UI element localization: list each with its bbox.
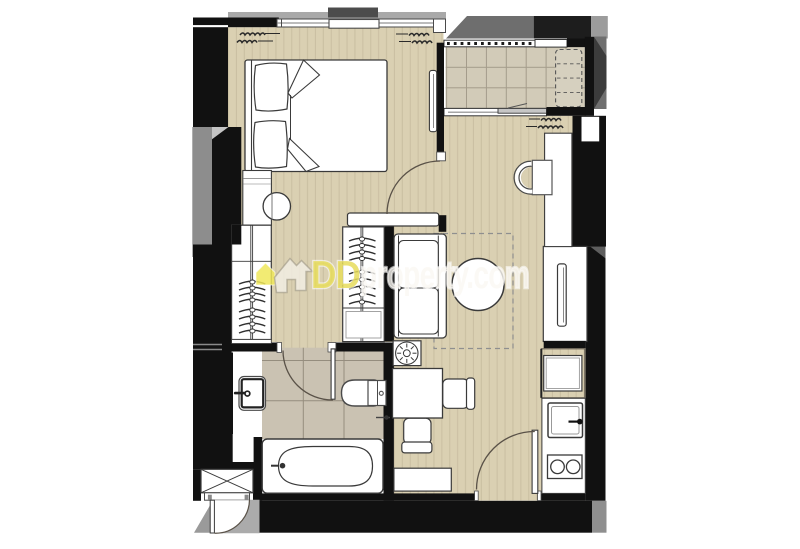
svg-text:DDproperty.com: DDproperty.com (311, 254, 529, 297)
